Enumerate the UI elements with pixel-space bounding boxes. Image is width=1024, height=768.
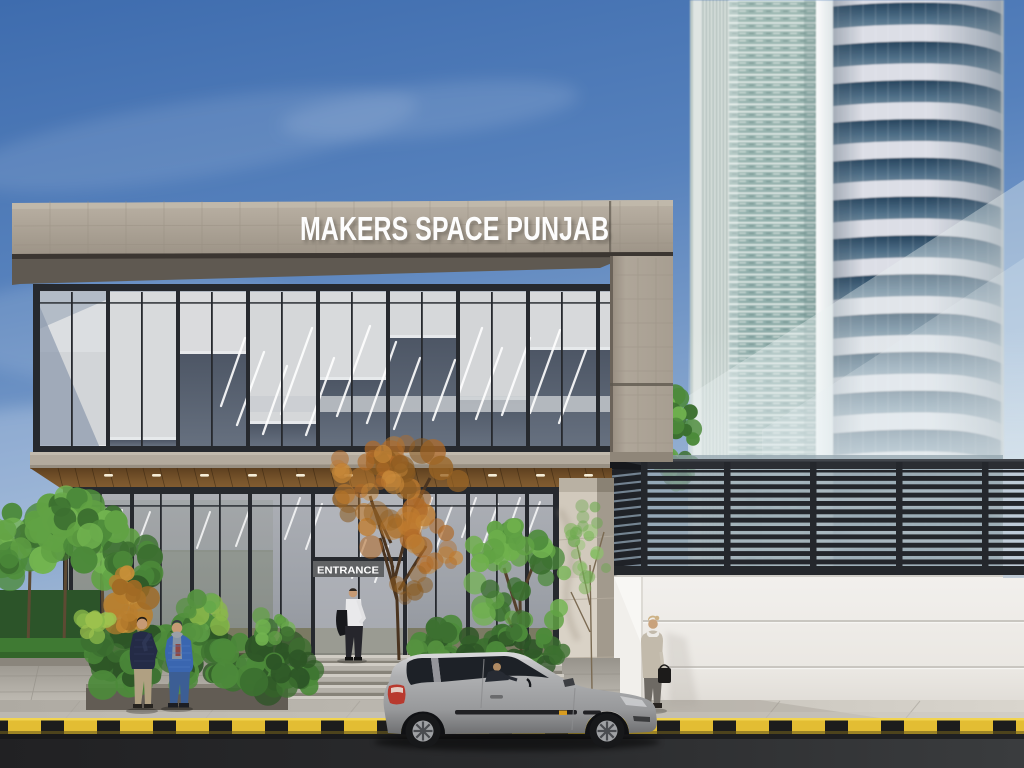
svg-text:MAKERS SPACE PUNJAB: MAKERS SPACE PUNJAB: [300, 210, 609, 247]
svg-text:ENTRANCE: ENTRANCE: [317, 565, 379, 577]
